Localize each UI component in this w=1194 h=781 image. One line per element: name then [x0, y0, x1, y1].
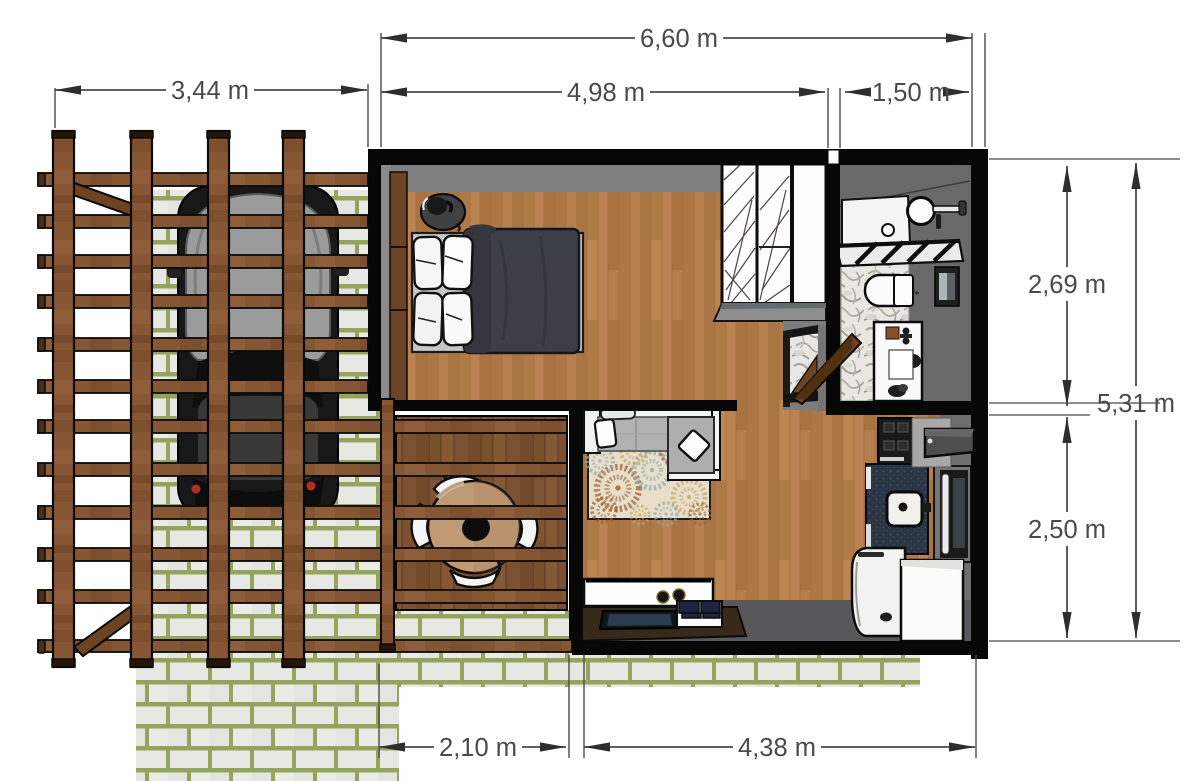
svg-text:2,69 m: 2,69 m: [1028, 271, 1106, 299]
svg-text:3,44 m: 3,44 m: [171, 77, 249, 105]
svg-text:5,31 m: 5,31 m: [1097, 390, 1175, 418]
svg-text:2,10 m: 2,10 m: [439, 734, 517, 762]
svg-text:2,50 m: 2,50 m: [1028, 516, 1106, 544]
svg-text:4,98 m: 4,98 m: [567, 79, 645, 107]
svg-text:*: *: [914, 289, 920, 301]
svg-text:1,50 m: 1,50 m: [872, 79, 950, 107]
svg-text:6,60 m: 6,60 m: [640, 25, 718, 53]
svg-text:4,38 m: 4,38 m: [738, 734, 816, 762]
